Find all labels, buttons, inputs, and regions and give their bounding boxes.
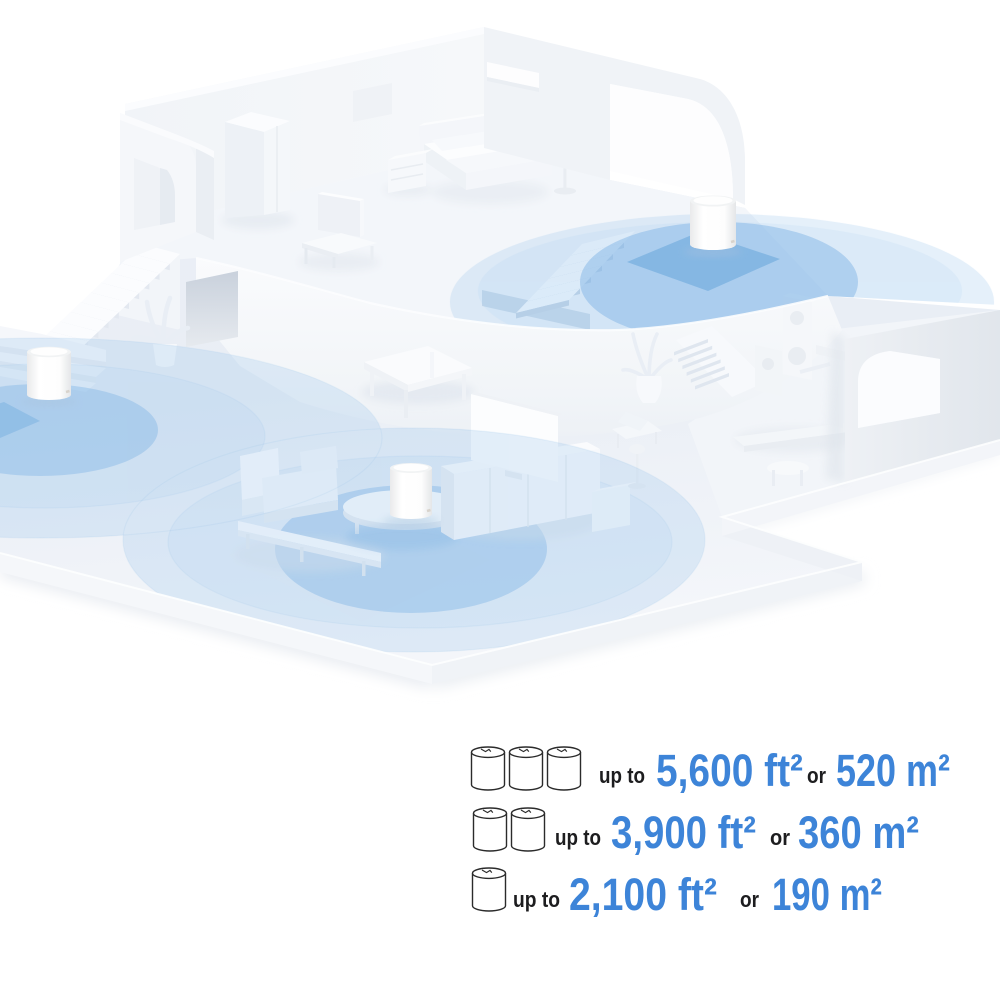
svg-text:or: or (740, 887, 759, 912)
svg-text:up to: up to (599, 763, 645, 788)
svg-text:360 m²: 360 m² (798, 807, 919, 858)
svg-text:5,600 ft²: 5,600 ft² (656, 745, 803, 796)
svg-text:or: or (770, 825, 790, 850)
svg-text:up to: up to (555, 825, 601, 850)
svg-text:520 m²: 520 m² (836, 745, 950, 796)
svg-text:or: or (807, 763, 826, 788)
svg-text:up to: up to (513, 887, 560, 912)
svg-text:190 m²: 190 m² (772, 869, 882, 920)
svg-text:2,100 ft²: 2,100 ft² (569, 869, 717, 920)
svg-text:3,900 ft²: 3,900 ft² (611, 807, 756, 858)
